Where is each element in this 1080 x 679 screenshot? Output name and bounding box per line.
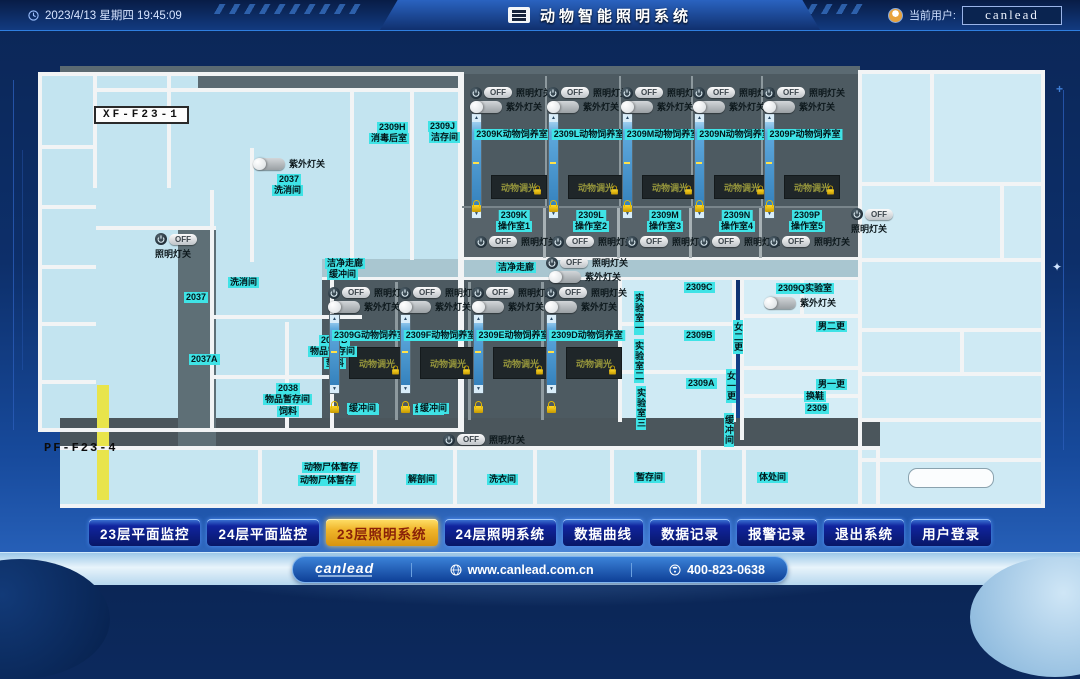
lock-shackle — [537, 366, 542, 371]
lock-icon — [463, 366, 470, 375]
wall-segment — [862, 372, 1042, 376]
room-label: 2309C — [684, 282, 715, 293]
power-button[interactable] — [547, 87, 559, 99]
room-label: 2037 — [184, 292, 208, 303]
wall-segment — [96, 226, 216, 230]
wall-segment — [38, 205, 96, 209]
wall-segment — [862, 258, 1042, 262]
light-switch-group: OFF照明灯关 — [851, 208, 893, 235]
switch-row: OFF照明灯关 — [546, 256, 628, 269]
wall-segment — [258, 450, 262, 506]
operation-room-code: 2309N — [722, 210, 753, 221]
partition-line — [462, 206, 858, 208]
light-switch-group: OFF照明灯关 — [328, 286, 410, 299]
off-toggle[interactable]: OFF — [782, 236, 810, 247]
divider — [411, 563, 412, 577]
room-label: 洁净走廊 — [496, 262, 536, 273]
uv-toggle[interactable] — [399, 301, 431, 313]
power-button[interactable] — [545, 287, 557, 299]
power-button[interactable] — [768, 236, 780, 248]
power-icon — [695, 89, 703, 97]
lock-shackle — [686, 186, 691, 191]
room-label: 2309 — [805, 403, 829, 414]
uv-switch-group: 紫外灯关 — [549, 270, 621, 283]
lock-icon — [611, 186, 618, 195]
light-switch-group: OFF照明灯关 — [399, 286, 481, 299]
power-icon — [548, 259, 556, 267]
wall-segment — [60, 446, 880, 450]
power-button[interactable] — [475, 236, 487, 248]
nav-tab-4[interactable]: 数据曲线 — [563, 519, 643, 546]
slider-down-arrow[interactable]: ▼ — [330, 385, 339, 393]
main-area: + ✦ 2309H消毒后室2309J洁存间2037洗消间洗消间20372037A… — [0, 30, 1080, 520]
switch-row: OFF照明灯关 — [475, 235, 557, 248]
light-switch-group: OFF照明灯关 — [546, 256, 628, 269]
nav-tab-3[interactable]: 24层照明系统 — [445, 519, 557, 546]
globe-icon — [450, 564, 462, 576]
light-switch-group: OFF照明灯关 — [545, 286, 627, 299]
off-toggle[interactable]: OFF — [413, 287, 441, 298]
animal-room-label: 2309M动物饲养室 — [625, 129, 702, 140]
uv-toggle[interactable] — [763, 101, 795, 113]
room-label: 2038 — [276, 383, 300, 394]
uv-toggle[interactable] — [253, 158, 285, 170]
animal-room-label: 2309P动物饲养室 — [767, 129, 842, 140]
uv-toggle[interactable] — [470, 101, 502, 113]
wall-segment — [744, 366, 858, 370]
power-icon — [401, 289, 409, 297]
lock-icon — [827, 186, 834, 195]
switch-label: 照明灯关 — [814, 235, 850, 248]
animal-room-label: 2309L动物饲养室 — [552, 129, 627, 140]
wall-segment — [1041, 70, 1045, 508]
room-label: 饲料 — [277, 406, 299, 417]
wall-segment — [38, 72, 462, 76]
off-toggle[interactable]: OFF — [484, 87, 512, 98]
power-icon — [623, 89, 631, 97]
room-label: 体处间 — [757, 472, 788, 483]
animal-room-label: 2309E动物饲养室 — [476, 330, 551, 341]
wall-segment — [38, 380, 96, 384]
wall-segment — [453, 450, 457, 506]
lock-shackle — [550, 200, 557, 207]
uv-switch-group: 紫外灯关 — [472, 300, 544, 313]
lock-icon — [534, 186, 541, 195]
switch-label: 紫外灯关 — [435, 300, 471, 313]
uv-switch-group: 紫外灯关 — [547, 100, 619, 113]
slider-up-arrow[interactable]: ▲ — [765, 114, 774, 122]
power-button[interactable] — [621, 87, 633, 99]
wall-segment — [876, 446, 880, 508]
slider-value-mark — [331, 351, 337, 353]
room-label: 2309B — [684, 330, 715, 341]
lock-shackle — [331, 401, 338, 408]
operation-room-name: 操作室5 — [789, 221, 825, 232]
light-switch-group: OFF照明灯关 — [626, 235, 708, 248]
earth-decoration — [970, 557, 1080, 677]
buffer-room-label: 缓冲间 — [418, 403, 449, 414]
lock-shackle — [535, 186, 540, 191]
slider-up-arrow[interactable]: ▲ — [623, 114, 632, 122]
slider-down-arrow[interactable]: ▼ — [401, 385, 410, 393]
header-bar: 2023/4/13 星期四 19:45:09 动物智能照明系统 当前用户: ca… — [0, 0, 1080, 31]
wall-segment — [214, 375, 334, 379]
off-toggle[interactable]: OFF — [640, 236, 668, 247]
room-label: 缓冲间 — [327, 269, 358, 280]
slider-value-mark — [475, 351, 481, 353]
wall-segment — [960, 332, 964, 372]
wall-segment — [60, 504, 880, 508]
nav-tab-6[interactable]: 报警记录 — [737, 519, 817, 546]
lock-shackle — [475, 401, 482, 408]
room-label: 物品暂存间 — [263, 394, 312, 405]
lock-icon — [392, 366, 399, 375]
header-title-band: 动物智能照明系统 — [380, 0, 820, 30]
floor-plan-3d-view: 2309H消毒后室2309J洁存间2037洗消间洗消间20372037A2037… — [0, 30, 1080, 520]
nav-tab-1[interactable]: 24层平面监控 — [207, 519, 319, 546]
light-switch-group: OFF照明灯关 — [547, 86, 629, 99]
wall-segment — [742, 450, 746, 506]
nav-tab-2[interactable]: 23层照明系统 — [326, 519, 438, 546]
room-label: 实验室三 — [636, 386, 646, 430]
slider-value-mark — [473, 162, 479, 164]
wall-segment — [862, 458, 1042, 462]
lock-icon — [547, 401, 556, 413]
uv-switch-group: 紫外灯关 — [621, 100, 693, 113]
username-value: canlead — [962, 6, 1062, 25]
power-icon — [547, 289, 555, 297]
operation-room-code: 2309P — [792, 210, 822, 221]
footer-info-bar: canlead www.canlead.com.cn 400-823-0638 — [292, 556, 788, 583]
room-label: 洗消间 — [228, 277, 259, 288]
room-label: 女一更 — [726, 369, 736, 403]
slider-up-arrow[interactable]: ▲ — [547, 315, 556, 323]
switch-row: OFF照明灯关 — [552, 235, 634, 248]
wall-segment — [862, 182, 1042, 186]
room-label: 男一更 — [816, 379, 847, 390]
buffer-room-label: 缓冲间 — [347, 403, 378, 414]
operation-room-code: 2309K — [499, 210, 530, 221]
switch-row: OFF照明灯关 — [621, 86, 703, 99]
off-toggle[interactable]: OFF — [486, 287, 514, 298]
page-title: 动物智能照明系统 — [540, 5, 692, 26]
lock-icon — [685, 186, 692, 195]
operation-room-name: 操作室3 — [647, 221, 683, 232]
partition-line — [689, 208, 692, 258]
slider-down-arrow[interactable]: ▼ — [474, 385, 483, 393]
website-text: www.canlead.com.cn — [468, 563, 594, 577]
uv-toggle[interactable] — [549, 271, 581, 283]
switch-row: OFF照明灯关 — [328, 286, 410, 299]
user-avatar-icon — [888, 8, 903, 23]
slider-up-arrow[interactable]: ▲ — [549, 114, 558, 122]
room-label: 洗衣间 — [487, 474, 518, 485]
footer-band: canlead www.canlead.com.cn 400-823-0638 — [0, 552, 1080, 585]
slider-value-mark — [624, 162, 630, 164]
room-label: 2309J — [428, 121, 457, 132]
operation-room-code: 2309L — [576, 210, 606, 221]
power-button[interactable] — [693, 87, 705, 99]
wall-segment — [533, 450, 537, 506]
switch-label: 照明灯关 — [591, 286, 627, 299]
area-code-label: PF-F23-4 — [44, 441, 118, 455]
uv-switch-group: 紫外灯关 — [399, 300, 471, 313]
room-label: 2309Q实验室 — [776, 283, 834, 294]
power-button[interactable] — [399, 287, 411, 299]
lock-icon — [695, 200, 704, 212]
wall-segment — [1000, 186, 1004, 258]
bottom-navigation: 23层平面监控24层平面监控23层照明系统24层照明系统数据曲线数据记录报警记录… — [0, 519, 1080, 546]
off-toggle[interactable]: OFF — [559, 287, 587, 298]
wall-segment — [38, 428, 462, 432]
power-icon — [853, 210, 861, 218]
light-switch-group: OFF照明灯关 — [621, 86, 703, 99]
switch-row: OFF — [155, 233, 197, 245]
room-label: 洁存间 — [429, 132, 460, 143]
switch-label: 紫外灯关 — [508, 300, 544, 313]
partition-line — [543, 208, 546, 258]
dimmer-slider[interactable]: ▲▼ — [473, 314, 484, 394]
room-label: 解剖间 — [406, 474, 437, 485]
room-label: 动物尸体暂存 — [298, 475, 356, 486]
uv-toggle[interactable] — [328, 301, 360, 313]
off-toggle[interactable]: OFF — [561, 87, 589, 98]
power-icon — [700, 238, 708, 246]
wall-segment — [350, 88, 354, 260]
switch-label: 紫外灯关 — [364, 300, 400, 313]
switch-row: OFF照明灯关 — [472, 286, 554, 299]
switch-label: 照明灯关 — [809, 86, 845, 99]
switch-label: 照明灯关 — [851, 222, 887, 235]
operation-room-name: 操作室4 — [719, 221, 755, 232]
nav-tab-8[interactable]: 用户登录 — [911, 519, 991, 546]
slider-up-arrow[interactable]: ▲ — [472, 114, 481, 122]
uv-switch-group: 紫外灯关 — [545, 300, 617, 313]
slider-down-arrow[interactable]: ▼ — [547, 385, 556, 393]
lock-icon — [472, 200, 481, 212]
lock-shackle — [828, 186, 833, 191]
switch-label: 紫外灯关 — [585, 270, 621, 283]
switch-label: 紫外灯关 — [800, 296, 836, 309]
power-button[interactable] — [546, 257, 558, 269]
wall-segment — [462, 257, 858, 260]
lock-shackle — [548, 401, 555, 408]
wall-segment — [862, 418, 1042, 422]
light-switch-group: OFF照明灯关 — [472, 286, 554, 299]
lock-shackle — [610, 366, 615, 371]
partition-line — [617, 208, 620, 258]
lock-icon — [401, 401, 410, 413]
animal-room-label: 2309D动物饲养室 — [549, 330, 625, 341]
power-icon — [472, 89, 480, 97]
room-label: 2309H — [377, 122, 408, 133]
brand-name: canlead — [315, 562, 374, 574]
off-toggle[interactable]: OFF — [457, 434, 485, 445]
power-button[interactable] — [155, 233, 167, 245]
switch-label: 照明灯关 — [592, 256, 628, 269]
uv-toggle[interactable] — [621, 101, 653, 113]
phone-text: 400-823-0638 — [687, 563, 765, 577]
nav-tab-0[interactable]: 23层平面监控 — [89, 519, 201, 546]
footer-brand: canlead — [315, 562, 374, 577]
off-toggle[interactable]: OFF — [635, 87, 663, 98]
current-user-area: 当前用户: canlead — [888, 0, 1062, 30]
wall-segment — [38, 145, 96, 149]
wall-segment — [610, 450, 614, 506]
light-switch-group: OFF照明灯关 — [155, 233, 197, 260]
off-toggle[interactable]: OFF — [865, 209, 893, 220]
power-button[interactable] — [698, 236, 710, 248]
area-code-label: XF-F23-1 — [94, 106, 189, 124]
lock-shackle — [766, 200, 773, 207]
slider-up-arrow[interactable]: ▲ — [474, 315, 483, 323]
uv-toggle[interactable] — [764, 297, 796, 309]
lock-icon — [623, 200, 632, 212]
room-label: 2037A — [189, 354, 220, 365]
power-button[interactable] — [443, 434, 455, 446]
power-button[interactable] — [472, 287, 484, 299]
partition-line — [759, 208, 762, 258]
room-label: 2037 — [277, 174, 301, 185]
power-button[interactable] — [552, 236, 564, 248]
operation-room-name: 操作室2 — [573, 221, 609, 232]
animal-room-label: 2309G动物饲养室 — [332, 330, 408, 341]
divider — [631, 563, 632, 577]
off-toggle[interactable]: OFF — [342, 287, 370, 298]
lock-icon — [536, 366, 543, 375]
nav-tab-5[interactable]: 数据记录 — [650, 519, 730, 546]
room-label: 换鞋 — [804, 391, 826, 402]
phone-icon — [669, 564, 681, 576]
room-label: 动物尸体暂存 — [302, 462, 360, 473]
switch-label: 紫外灯关 — [581, 300, 617, 313]
switch-label: 紫外灯关 — [799, 100, 835, 113]
switch-label: 照明灯关 — [489, 433, 525, 446]
wall-segment — [862, 328, 1042, 332]
power-button[interactable] — [626, 236, 638, 248]
lock-icon — [765, 200, 774, 212]
power-icon — [474, 289, 482, 297]
power-icon — [554, 238, 562, 246]
dimmer-slider[interactable]: ▲▼ — [546, 314, 557, 394]
wall-segment — [93, 76, 97, 188]
slider-value-mark — [402, 351, 408, 353]
room-label: 2309A — [686, 378, 717, 389]
wall-segment — [858, 70, 862, 508]
off-toggle[interactable]: OFF — [566, 236, 594, 247]
slider-up-arrow[interactable]: ▲ — [401, 315, 410, 323]
lock-icon — [757, 186, 764, 195]
switch-label: 紫外灯关 — [506, 100, 542, 113]
off-toggle[interactable]: OFF — [169, 234, 197, 245]
clock-icon — [28, 10, 39, 21]
power-icon — [330, 289, 338, 297]
wall-segment — [38, 265, 96, 269]
power-icon — [445, 436, 453, 444]
off-toggle[interactable]: OFF — [707, 87, 735, 98]
table-decoration — [908, 468, 994, 488]
uv-switch-group: 紫外灯关 — [764, 296, 836, 309]
power-button[interactable] — [470, 87, 482, 99]
wall-segment — [38, 322, 96, 326]
animal-room-label: 2309K动物饲养室 — [474, 129, 550, 140]
datetime-text: 2023/4/13 星期四 19:45:09 — [45, 7, 182, 23]
switch-row: OFF照明灯关 — [545, 286, 627, 299]
power-button[interactable] — [851, 208, 863, 220]
slider-value-mark — [766, 162, 772, 164]
lock-icon — [330, 401, 339, 413]
switch-row: OFF — [851, 208, 893, 220]
lock-icon — [474, 401, 483, 413]
slider-up-arrow[interactable]: ▲ — [695, 114, 704, 122]
operation-room-name: 操作室1 — [496, 221, 532, 232]
wall-segment — [930, 74, 934, 182]
lock-shackle — [624, 200, 631, 207]
dimmer-slider[interactable]: ▲▼ — [400, 314, 411, 394]
wall-segment — [38, 72, 42, 432]
wall-segment — [96, 88, 462, 92]
phone-item: 400-823-0638 — [669, 563, 765, 577]
lock-icon — [609, 366, 616, 375]
dimmer-slider[interactable]: ▲▼ — [329, 314, 340, 394]
switch-row: OFF照明灯关 — [470, 86, 552, 99]
lock-shackle — [473, 200, 480, 207]
lock-icon — [549, 200, 558, 212]
power-button[interactable] — [763, 87, 775, 99]
power-icon — [549, 89, 557, 97]
off-toggle[interactable]: OFF — [560, 257, 588, 268]
wall-segment — [858, 70, 1045, 74]
switch-label: 紫外灯关 — [729, 100, 765, 113]
lock-shackle — [393, 366, 398, 371]
off-toggle[interactable]: OFF — [712, 236, 740, 247]
off-toggle[interactable]: OFF — [489, 236, 517, 247]
switch-row: OFF照明灯关 — [626, 235, 708, 248]
uv-toggle[interactable] — [693, 101, 725, 113]
power-icon — [770, 238, 778, 246]
power-button[interactable] — [328, 287, 340, 299]
uv-switch-group: 紫外灯关 — [763, 100, 835, 113]
light-switch-group: OFF照明灯关 — [443, 433, 525, 446]
slider-up-arrow[interactable]: ▲ — [330, 315, 339, 323]
wall-segment — [744, 394, 858, 398]
uv-switch-group: 紫外灯关 — [328, 300, 400, 313]
uv-switch-group: 紫外灯关 — [470, 100, 542, 113]
nav-tab-7[interactable]: 退出系统 — [824, 519, 904, 546]
website-item: www.canlead.com.cn — [450, 563, 594, 577]
brand-logo-icon — [508, 7, 530, 23]
switch-row: OFF照明灯关 — [763, 86, 845, 99]
off-toggle[interactable]: OFF — [777, 87, 805, 98]
switch-row: OFF照明灯关 — [768, 235, 850, 248]
light-switch-group: OFF照明灯关 — [552, 235, 634, 248]
room-label: 男二更 — [816, 321, 847, 332]
switch-row: OFF照明灯关 — [547, 86, 629, 99]
room-label: 消毒后室 — [369, 133, 409, 144]
header-decoration — [214, 4, 364, 14]
uv-toggle[interactable] — [545, 301, 577, 313]
user-label: 当前用户: — [909, 7, 956, 23]
switch-label: 紫外灯关 — [657, 100, 693, 113]
switch-row: OFF照明灯关 — [399, 286, 481, 299]
uv-toggle[interactable] — [472, 301, 504, 313]
wall-segment — [697, 450, 701, 506]
uv-toggle[interactable] — [547, 101, 579, 113]
animal-room-label: 2309F动物饲养室 — [404, 330, 479, 341]
datetime-display: 2023/4/13 星期四 19:45:09 — [28, 0, 182, 30]
uv-switch-group: 紫外灯关 — [253, 157, 325, 170]
switch-label: 照明灯关 — [155, 247, 191, 260]
